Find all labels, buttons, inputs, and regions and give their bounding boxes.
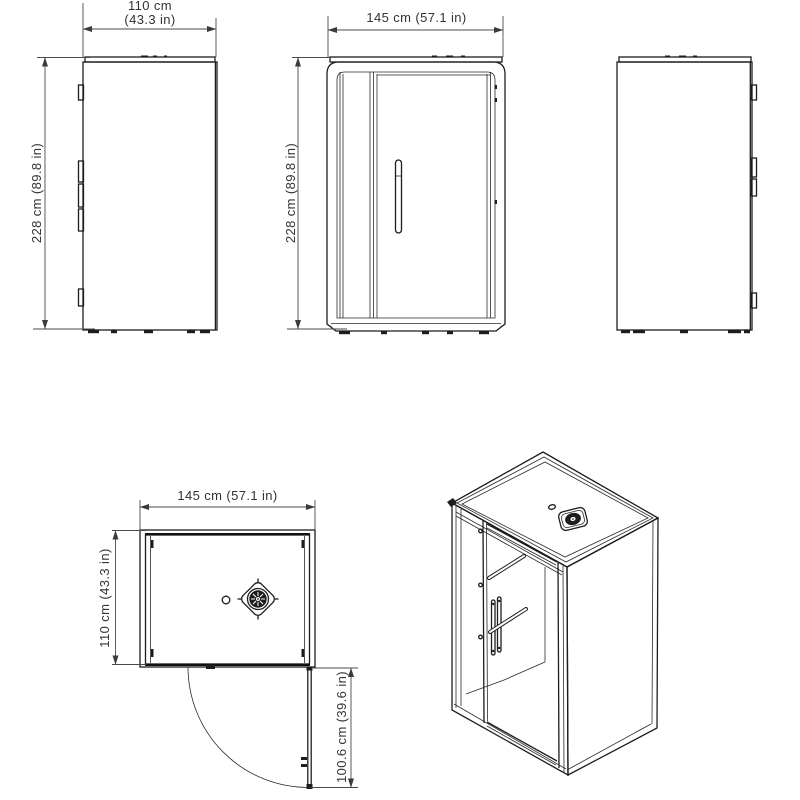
window-panel — [340, 72, 377, 318]
ceiling-light-icon — [222, 596, 230, 604]
door-handle — [396, 160, 402, 233]
fan-vent-icon — [238, 579, 279, 620]
dim-label-front-height: 228 cm (89.8 in) — [284, 113, 298, 273]
technical-drawing-canvas: 110 cm (43.3 in) 228 cm (89.8 in) 145 cm… — [0, 0, 800, 800]
view-side-right — [617, 56, 757, 334]
door-strike-mark — [206, 665, 215, 670]
dim-label-side-left-width: 110 cm (43.3 in) — [83, 0, 217, 27]
view-isometric — [447, 452, 658, 775]
door-handle-mark — [301, 757, 307, 760]
open-door — [301, 667, 313, 790]
door-swing-arc — [188, 667, 309, 788]
door — [377, 72, 491, 318]
dimension-lines-side-left — [33, 3, 216, 329]
glass-door — [487, 524, 564, 772]
view-front — [287, 16, 505, 334]
fan-vent-icon-roof — [558, 507, 589, 532]
dim-label-top-width: 145 cm (57.1 in) — [140, 489, 315, 503]
wall-corner-marks — [151, 540, 304, 657]
view-top-plan — [112, 500, 358, 789]
dim-label-side-left-height: 228 cm (89.8 in) — [30, 113, 44, 273]
view-side-left — [33, 3, 217, 333]
dimension-lines-top-plan — [112, 500, 358, 788]
roof-hole — [548, 504, 556, 510]
dim-label-front-width: 145 cm (57.1 in) — [330, 11, 503, 25]
dim-label-top-depth: 110 cm (43.3 in) — [98, 523, 112, 673]
feet — [621, 330, 750, 333]
dim-label-door-swing: 100.6 cm (39.6 in) — [335, 647, 349, 800]
drawing-svg — [0, 0, 800, 800]
